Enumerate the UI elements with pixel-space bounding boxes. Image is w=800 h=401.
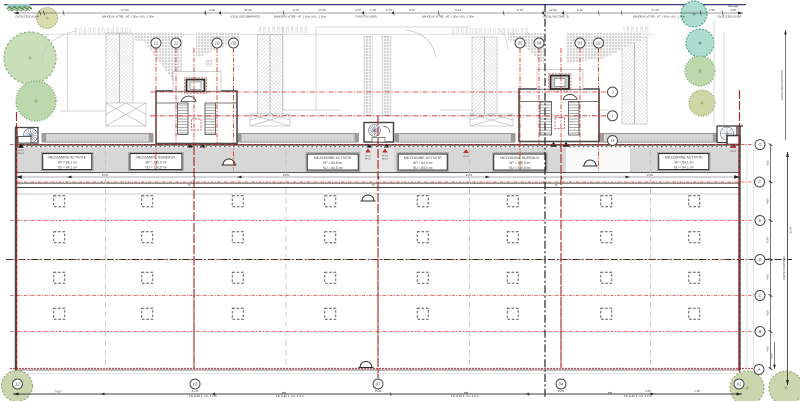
svg-text:07: 07 (376, 382, 381, 387)
svg-text:MEZZANINE ACTIVITE: MEZZANINE ACTIVITE (404, 156, 442, 160)
svg-text:SP = 84,6 m²: SP = 84,6 m² (323, 161, 343, 165)
svg-text:F: F (758, 180, 761, 185)
svg-text:PF1/2: PF1/2 (365, 156, 372, 158)
svg-text:BANDEAU VITRE - HT. 1.50m / AL: BANDEAU VITRE - HT. 1.50m / ALL. 1.00m (633, 15, 686, 19)
svg-text:04: 04 (559, 382, 564, 387)
svg-text:LIMITE D'EMPRISE: LIMITE D'EMPRISE (782, 256, 786, 280)
svg-text:P.R. ALEO 9 - ALL. 8,10 m: P.R. ALEO 9 - ALL. 8,10 m (451, 395, 479, 398)
svg-text:55,44: 55,44 (375, 389, 382, 393)
svg-text:0.56: 0.56 (709, 8, 715, 12)
svg-text:0.75: 0.75 (517, 8, 523, 12)
svg-text:4,90: 4,90 (765, 346, 769, 352)
svg-text:PF1/2: PF1/2 (382, 156, 389, 158)
svg-text:4,90: 4,90 (765, 274, 769, 280)
svg-text:4,34: 4,34 (765, 237, 769, 243)
svg-text:SU = 84,6 m²: SU = 84,6 m² (323, 166, 343, 170)
svg-text:03: 03 (578, 41, 583, 46)
svg-text:9.24: 9.24 (455, 8, 461, 12)
svg-text:SU = 100,5 m²: SU = 100,5 m² (145, 165, 167, 169)
svg-text:02: 02 (596, 41, 601, 46)
svg-text:12.32: 12.32 (549, 8, 557, 12)
svg-text:SP = 105,0 m²: SP = 105,0 m² (145, 161, 167, 165)
svg-text:LOCAL D'EXPLOITATION: LOCAL D'EXPLOITATION (780, 70, 784, 100)
svg-text:CAGE D'ESCALIER: CAGE D'ESCALIER (717, 15, 741, 19)
svg-text:01: 01 (737, 382, 742, 387)
svg-text:4,82: 4,82 (765, 160, 769, 166)
svg-text:P.R. ALEO 9 - ALL. 8,10 m: P.R. ALEO 9 - ALL. 8,10 m (624, 395, 652, 398)
svg-text:JD: JD (555, 184, 558, 187)
svg-text:4,00: 4,00 (770, 353, 774, 359)
svg-text:LOCAL ENCOMBRANTS: LOCAL ENCOMBRANTS (230, 15, 261, 19)
svg-text:CAGE ESCALIER: CAGE ESCALIER (355, 15, 377, 19)
svg-text:JD: JD (372, 184, 375, 187)
svg-text:passage: passage (727, 5, 739, 8)
svg-text:P.R. ALEO 9 - ALL. 8,10 m: P.R. ALEO 9 - ALL. 8,10 m (276, 395, 304, 398)
svg-text:B: B (759, 329, 762, 334)
svg-text:17.26: 17.26 (121, 8, 129, 12)
svg-text:CAGE D'ESCALIER: CAGE D'ESCALIER (15, 15, 39, 19)
svg-text:SP = 84,1 m²: SP = 84,1 m² (674, 161, 694, 165)
svg-text:2,05: 2,05 (645, 389, 651, 393)
svg-text:P.R. ALEO 9 - ALL. 8,10 m: P.R. ALEO 9 - ALL. 8,10 m (189, 395, 217, 398)
svg-text:BANDEAU VITRE - HT. 1.50m / AL: BANDEAU VITRE - HT. 1.50m / ALL. 1.00m (102, 15, 155, 19)
svg-text:5.10: 5.10 (577, 8, 583, 12)
svg-text:PF1/2: PF1/2 (463, 156, 470, 158)
svg-text:11: 11 (174, 41, 178, 46)
svg-text:17.09: 17.09 (318, 8, 326, 12)
svg-text:0.70: 0.70 (355, 8, 361, 12)
svg-text:PF1/2: PF1/2 (18, 150, 25, 152)
svg-text:LOCAL ENCOMB. 35: LOCAL ENCOMB. 35 (543, 15, 569, 19)
svg-text:E: E (759, 218, 762, 223)
svg-text:4.06: 4.06 (730, 8, 736, 12)
svg-text:RF1/2: RF1/2 (382, 159, 389, 161)
svg-text:RF1/2: RF1/2 (365, 159, 372, 161)
svg-text:A: A (757, 367, 761, 372)
svg-text:0.90: 0.90 (209, 8, 215, 12)
svg-text:SU = 84,1 m²: SU = 84,1 m² (674, 165, 694, 169)
svg-text:05: 05 (518, 41, 523, 46)
svg-text:5.70: 5.70 (409, 8, 415, 12)
svg-text:51,10: 51,10 (192, 389, 199, 393)
svg-text:MEZZANINE ACTIVITE: MEZZANINE ACTIVITE (665, 156, 703, 160)
svg-text:SU = 84,0 m²: SU = 84,0 m² (413, 166, 433, 170)
svg-text:4,90: 4,90 (765, 198, 769, 204)
svg-text:04: 04 (537, 41, 542, 46)
svg-text:RF1/2: RF1/2 (18, 153, 25, 155)
svg-text:1,18: 1,18 (694, 389, 700, 393)
svg-text:12: 12 (15, 382, 20, 387)
svg-text:4,56: 4,56 (765, 310, 769, 316)
svg-text:MEZZANINE ACTIVITE: MEZZANINE ACTIVITE (48, 156, 86, 160)
svg-text:33,43: 33,43 (789, 226, 793, 233)
svg-text:0.70: 0.70 (386, 8, 392, 12)
svg-text:11.40: 11.40 (244, 8, 252, 12)
svg-text:SP = 84,1 m²: SP = 84,1 m² (58, 161, 78, 165)
svg-text:MEZZANINE ACTIVITE: MEZZANINE ACTIVITE (314, 156, 352, 160)
svg-text:74,57: 74,57 (54, 389, 62, 393)
svg-text:SU = 84,1 m²: SU = 84,1 m² (58, 165, 78, 169)
svg-text:10: 10 (215, 41, 220, 46)
svg-text:D: D (758, 257, 761, 262)
svg-text:55,52: 55,52 (558, 389, 565, 393)
svg-text:JD: JD (188, 184, 191, 187)
svg-text:12: 12 (154, 41, 159, 46)
svg-text:PF1/2: PF1/2 (730, 151, 737, 153)
svg-text:SP = 84,0 m²: SP = 84,0 m² (413, 161, 433, 165)
svg-text:0.70: 0.70 (293, 8, 299, 12)
svg-text:1.30: 1.30 (370, 8, 376, 12)
svg-text:09: 09 (231, 41, 236, 46)
svg-text:BANDEAU VITRE - HT. 1.50m / AL: BANDEAU VITRE - HT. 1.50m / ALL. 1.00m (422, 15, 475, 19)
svg-text:17.26: 17.26 (651, 8, 659, 12)
svg-text:10: 10 (193, 382, 198, 387)
svg-text:BANDEAU VITRE - HT. 1.50m / AL: BANDEAU VITRE - HT. 1.50m / ALL. 1.00m (274, 15, 327, 19)
